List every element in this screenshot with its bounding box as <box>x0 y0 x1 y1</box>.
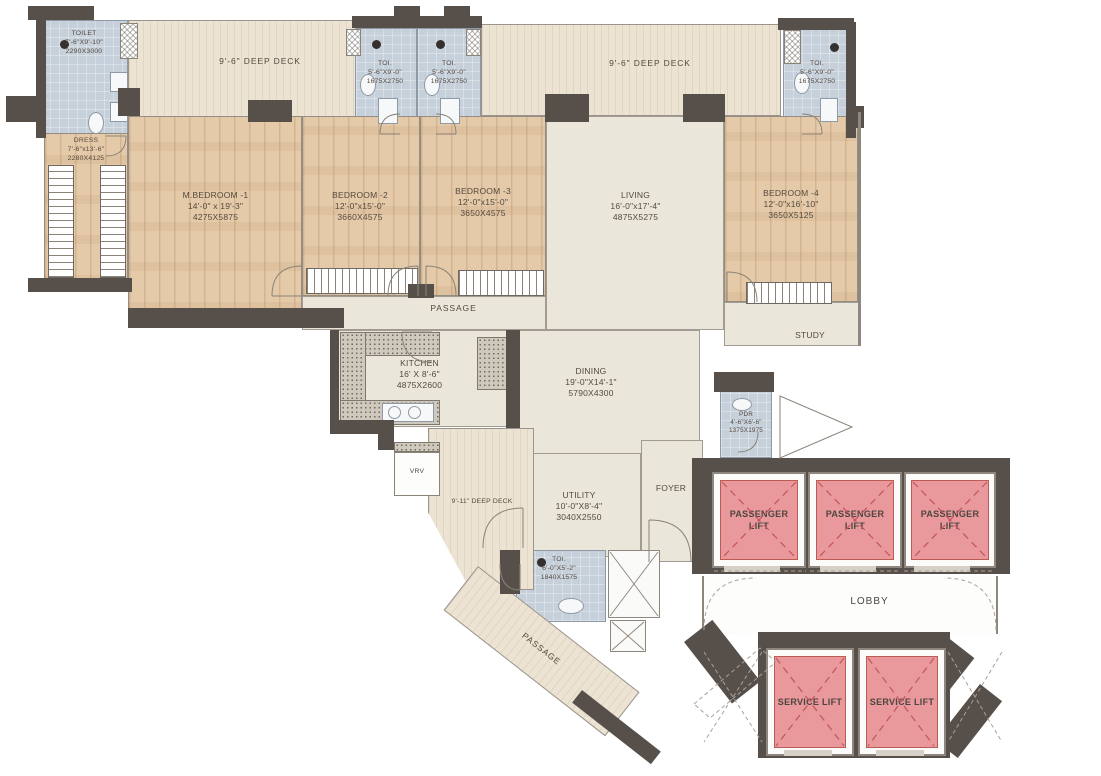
label-deck-right: 9'-6" DEEP DECK <box>560 58 740 69</box>
passenger-lift-3: PASSENGER LIFT <box>911 480 989 560</box>
wall-segment <box>850 106 864 128</box>
wardrobe <box>746 282 832 304</box>
label-study: STUDY <box>770 330 850 341</box>
wardrobe <box>306 268 418 294</box>
label-bedroom-4: BEDROOM -412'-0"x16'-10"3650X5125 <box>726 188 856 222</box>
shower-panel <box>784 30 801 64</box>
wall-column <box>683 94 725 122</box>
lift-sill <box>784 750 832 756</box>
service-lift-1: SERVICE LIFT <box>774 656 846 748</box>
wall-line <box>858 112 861 346</box>
washbasin <box>820 98 838 122</box>
label-pdr: PDR4'-6"X6'-6"1375X1975 <box>712 411 780 436</box>
label-toi-2: TOI.5'-6"X9'-0"1675X2750 <box>350 60 420 86</box>
label-toi-4: TOI.5'-6"X9'-0"1675X2750 <box>780 60 854 86</box>
service-lift-label: SERVICE LIFT <box>778 696 842 708</box>
label-utility: UTILITY10'-0"X8'-4"3040X2550 <box>520 490 638 524</box>
lift-sill <box>820 566 876 572</box>
lift-sill <box>876 750 924 756</box>
drain-dot <box>436 40 445 49</box>
wall-segment <box>408 284 434 298</box>
passenger-lift-label: PASSENGER LIFT <box>912 508 988 532</box>
passenger-lift-label: PASSENGER LIFT <box>721 508 797 532</box>
sink-bowl <box>408 406 421 419</box>
wall-segment <box>330 330 339 428</box>
lift-sill <box>914 566 970 572</box>
passenger-lift-2: PASSENGER LIFT <box>816 480 894 560</box>
wall-segment <box>6 96 40 122</box>
wall-segment <box>714 372 774 392</box>
shower-panel <box>346 29 361 56</box>
wall-segment <box>28 278 132 292</box>
drain-dot <box>372 40 381 49</box>
label-living: LIVING16'-0"x17'-4"4875X5275 <box>558 190 713 224</box>
drain-dot <box>830 43 839 52</box>
label-lobby: LOBBY <box>822 595 917 608</box>
label-bedroom-3: BEDROOM -312'-0"x15'-0"3650X4575 <box>424 186 542 220</box>
passenger-lift-1: PASSENGER LIFT <box>720 480 798 560</box>
label-bedroom-2: BEDROOM -212'-0"x15'-0"3660X4575 <box>304 190 416 224</box>
wall-column <box>118 88 140 116</box>
kitchen-counter-right <box>477 337 507 390</box>
wall-segment <box>778 18 854 30</box>
duct-shaft <box>608 550 660 618</box>
label-dress: DRESS7'-6"x13'-6"2280X4125 <box>36 137 136 163</box>
label-deck-left: 9'-6" DEEP DECK <box>160 56 360 67</box>
label-toi-utility: TOI.6'-0"X5'-2"1840X1575 <box>512 556 606 582</box>
washbasin <box>440 98 460 124</box>
sink-bowl <box>388 406 401 419</box>
passenger-lift-label: PASSENGER LIFT <box>817 508 893 532</box>
lift-sill <box>724 566 780 572</box>
washbasin <box>378 98 398 124</box>
wall-segment <box>444 6 470 18</box>
label-dining: DINING19'-0"X14'-1"5790X4300 <box>516 366 666 400</box>
wc <box>88 112 104 134</box>
duct-shaft-small <box>610 620 646 652</box>
room-deck-right <box>481 24 781 116</box>
wall-segment <box>378 426 394 450</box>
label-toi-3: TOI.5'-6"X9'-0"1675X2750 <box>414 60 484 86</box>
label-vrv: VRV <box>394 468 440 477</box>
entry-door-triangle <box>780 396 852 458</box>
vrv-ledge <box>394 442 440 452</box>
label-m-bedroom-1: M.BEDROOM -114'-0" x 19'-3"4275X5875 <box>148 190 283 224</box>
wc <box>732 398 752 411</box>
label-kitchen: KITCHEN16' X 8'-6"4875X2600 <box>372 358 467 392</box>
floor-plan: PASSAGE <box>0 0 1101 776</box>
wall-column <box>545 94 589 122</box>
wardrobe <box>100 165 126 278</box>
label-deck-bottom: 9'-11" DEEP DECK <box>442 498 522 507</box>
shower-panel <box>466 29 481 56</box>
wall-segment <box>128 308 344 328</box>
wardrobe <box>48 165 74 278</box>
label-toilet-master: TOILET7'-6"X9'-10"2290X3000 <box>34 30 134 56</box>
service-lift-2: SERVICE LIFT <box>866 656 938 748</box>
wardrobe <box>458 270 544 296</box>
service-lift-label: SERVICE LIFT <box>870 696 934 708</box>
wall-column <box>248 100 292 122</box>
wall-segment <box>394 6 420 18</box>
label-foyer: FOYER <box>626 483 716 494</box>
label-passage: PASSAGE <box>406 303 501 314</box>
wc <box>558 598 584 614</box>
